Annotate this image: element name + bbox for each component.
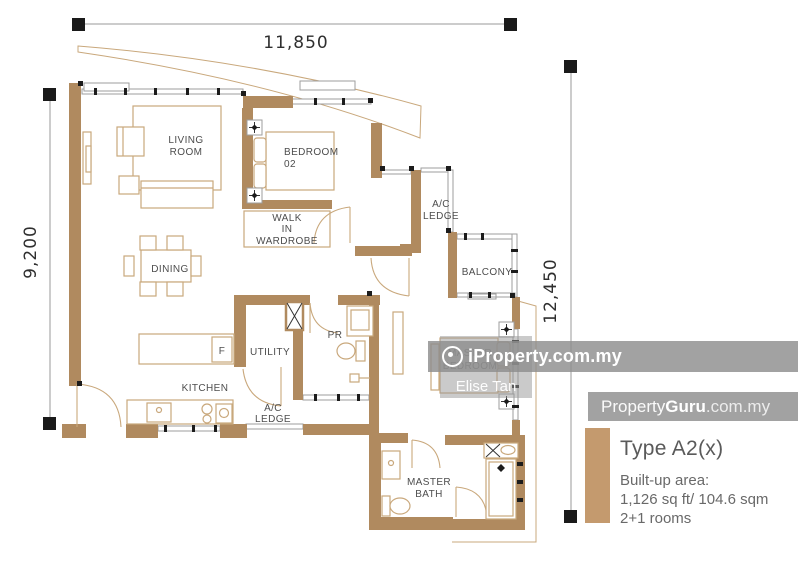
dimension-left: 9,200 [21,88,56,430]
agent-watermark-text: Elise Tan [456,378,517,395]
pillow [254,164,266,188]
dimension-left-value: 9,200 [21,225,41,279]
armchair [117,127,144,156]
iproperty-watermark-text: iProperty.com.my [468,346,622,367]
svg-text:WARDROBE: WARDROBE [256,236,318,247]
svg-text:ROOM: ROOM [170,147,203,158]
dimension-right-value: 12,450 [541,258,561,323]
toilet-bowl [337,343,355,359]
hall-door [371,258,409,296]
label-utility: UTILITY [250,347,290,358]
tv [86,146,91,172]
master-bath-door [412,440,440,468]
utility-door [243,367,281,406]
builtup-area-value: 1,126 sq ft/ 104.6 sqm [620,490,768,509]
label-master-bath: MASTER [407,477,451,488]
hall-cabinet [393,312,403,374]
iproperty-watermark-bar: iProperty.com.my [428,341,798,372]
wardrobe-door [314,207,350,243]
svg-text:IN: IN [282,224,293,235]
dimension-top-value: 11,850 [263,33,328,53]
toilet-bowl [390,498,410,514]
builtup-label: Built-up area: [620,471,768,490]
label-balcony: BALCONY [462,267,513,278]
svg-text:BATH: BATH [415,489,443,500]
rooms-count: 2+1 rooms [620,509,768,528]
label-walk-in-wardrobe: WALK [272,213,302,224]
vanity-sink [501,446,515,455]
svg-text:LEDGE: LEDGE [255,414,291,425]
label-pr: PR [328,330,343,341]
sofa [141,181,213,208]
toilet-tank [356,341,365,361]
shower-head [350,374,359,382]
svg-text:02: 02 [284,159,296,170]
entrance-door [77,384,121,427]
service-shaft [286,302,303,330]
toilet-tank [382,496,390,516]
legend-color-bar [585,428,610,523]
shower-door [456,487,487,517]
pillow [254,138,266,162]
propertyguru-text-property: Property [601,397,665,417]
side-table [119,176,139,194]
label-fridge: F [219,346,226,357]
svg-text:LEDGE: LEDGE [423,211,459,222]
label-bedroom-02: BEDROOM [284,147,338,158]
label-living-room: LIVING [168,135,203,146]
propertyguru-text-guru: Guru [665,397,706,417]
floorplan-page: LIVING ROOM BEDROOM 02 WALK IN WARDROBE … [0,0,798,562]
propertyguru-watermark-bar: PropertyGuru.com.my [588,392,798,421]
pr-door [310,303,338,333]
unit-type-title: Type A2(x) [620,437,723,461]
label-kitchen: KITCHEN [182,383,229,394]
label-dining: DINING [151,264,188,275]
bed-02 [266,132,334,190]
propertyguru-text-suffix: .com.my [706,397,770,417]
label-ac-ledge-bottom: A/C [264,403,282,414]
iproperty-logo-icon [442,346,463,367]
dimension-right: 12,450 [541,60,577,523]
label-ac-ledge-top: A/C [432,199,450,210]
dimension-top: 11,850 [72,18,517,53]
unit-details: Built-up area: 1,126 sq ft/ 104.6 sqm 2+… [620,471,768,529]
